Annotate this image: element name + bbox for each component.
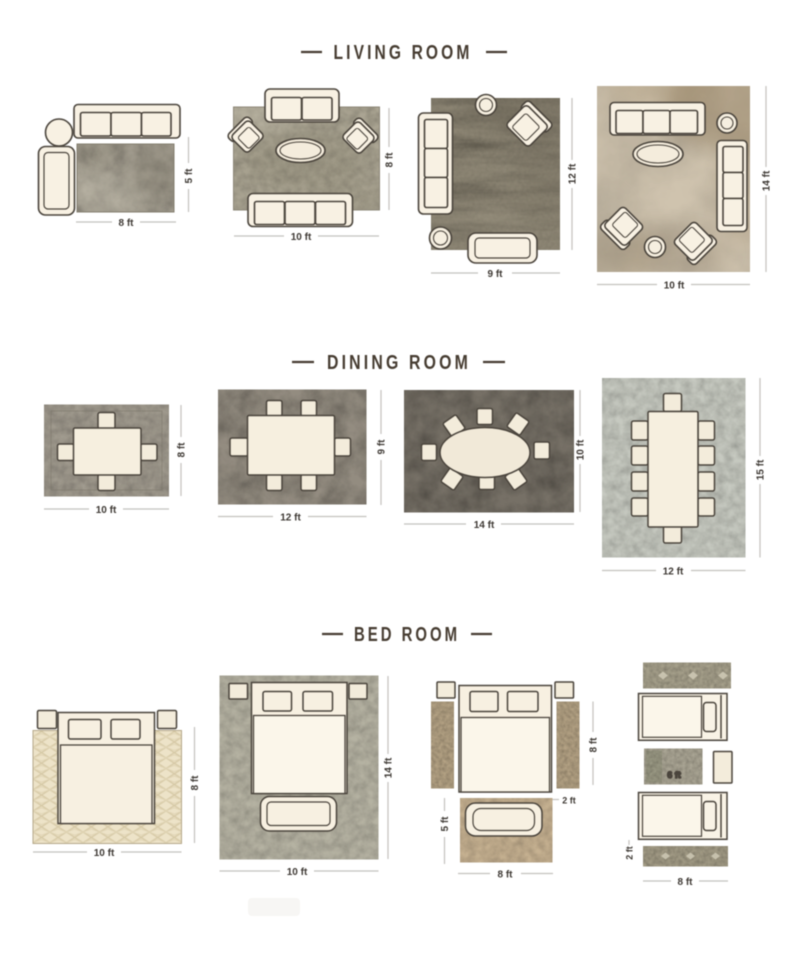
svg-text:2 ft: 2 ft bbox=[625, 846, 635, 860]
svg-text:14 ft: 14 ft bbox=[762, 170, 773, 191]
svg-text:2 ft: 2 ft bbox=[562, 796, 576, 806]
svg-text:12 ft: 12 ft bbox=[568, 163, 579, 184]
svg-text:14 ft: 14 ft bbox=[384, 757, 395, 778]
svg-text:DINING ROOM: DINING ROOM bbox=[327, 352, 471, 374]
svg-text:10 ft: 10 ft bbox=[664, 281, 685, 292]
svg-text:8 ft: 8 ft bbox=[498, 870, 514, 881]
svg-text:8 ft: 8 ft bbox=[119, 218, 135, 229]
svg-text:15 ft: 15 ft bbox=[756, 459, 767, 480]
svg-text:5 ft: 5 ft bbox=[440, 816, 451, 832]
svg-text:14 ft: 14 ft bbox=[474, 520, 495, 531]
svg-text:12 ft: 12 ft bbox=[280, 513, 301, 524]
svg-text:9 ft: 9 ft bbox=[488, 269, 504, 280]
svg-text:8 ft: 8 ft bbox=[589, 737, 600, 753]
svg-text:6 ft: 6 ft bbox=[667, 770, 681, 780]
svg-text:10 ft: 10 ft bbox=[576, 439, 587, 460]
svg-text:10 ft: 10 ft bbox=[287, 867, 308, 878]
svg-text:BED ROOM: BED ROOM bbox=[354, 624, 460, 646]
svg-text:10 ft: 10 ft bbox=[94, 848, 115, 859]
svg-text:5 ft: 5 ft bbox=[184, 168, 195, 184]
svg-text:8 ft: 8 ft bbox=[177, 442, 188, 458]
svg-text:12 ft: 12 ft bbox=[663, 567, 684, 578]
svg-text:8 ft: 8 ft bbox=[385, 152, 396, 168]
svg-text:10 ft: 10 ft bbox=[291, 232, 312, 243]
svg-text:8 ft: 8 ft bbox=[678, 877, 694, 888]
svg-text:LIVING ROOM: LIVING ROOM bbox=[334, 42, 473, 64]
svg-text:8 ft: 8 ft bbox=[190, 775, 201, 791]
svg-text:10 ft: 10 ft bbox=[96, 505, 117, 516]
svg-text:9 ft: 9 ft bbox=[377, 439, 388, 455]
